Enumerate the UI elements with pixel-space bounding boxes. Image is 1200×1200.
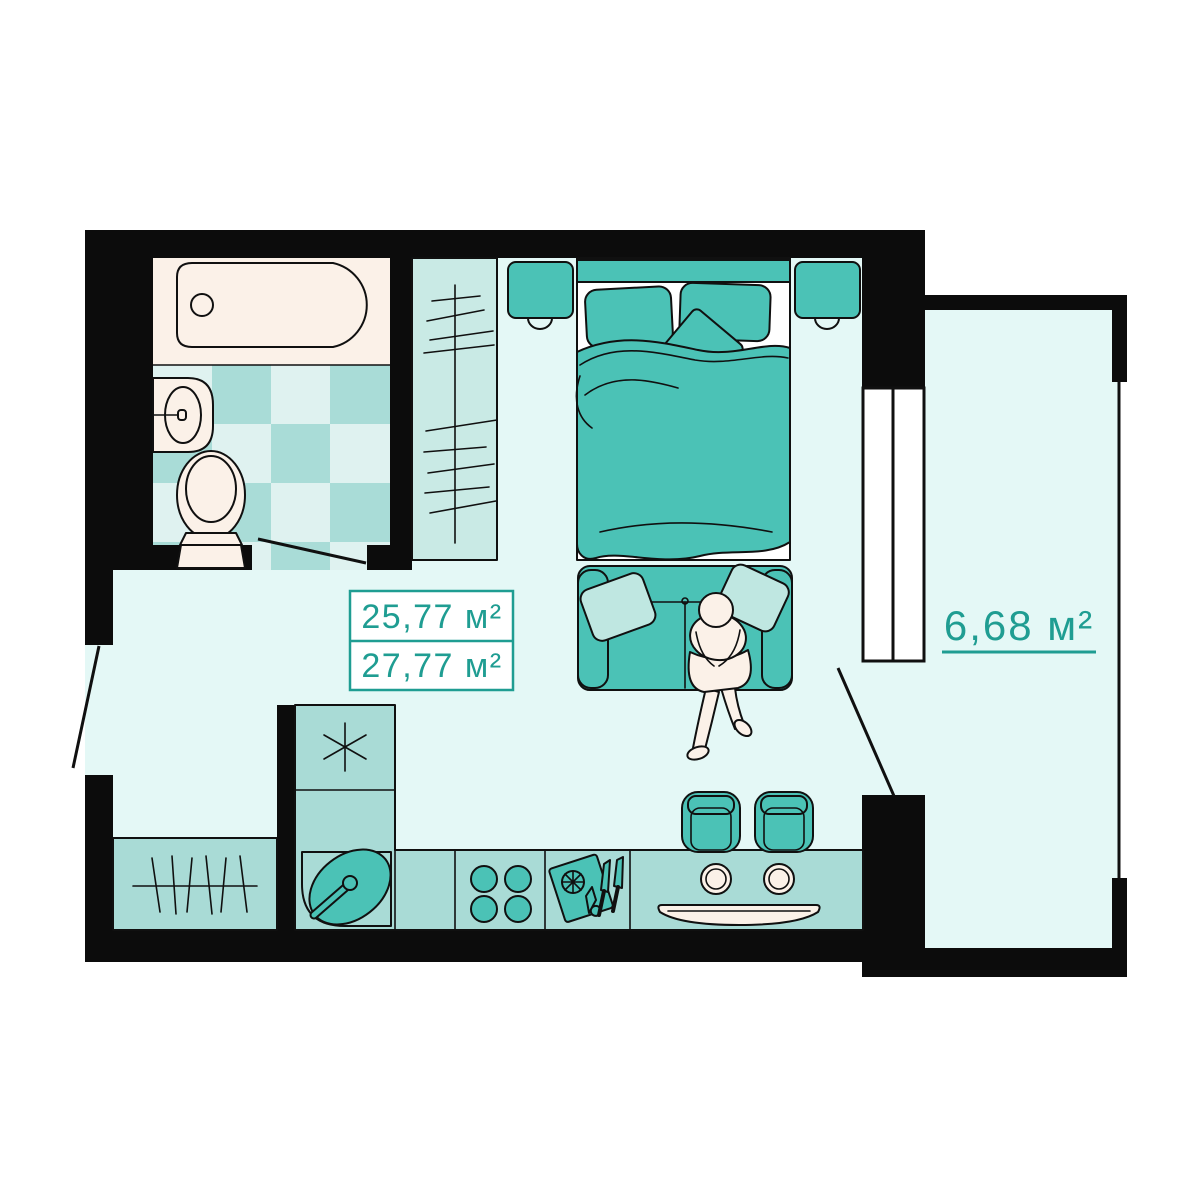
balcony-door-opening: [862, 661, 925, 795]
person-head: [699, 593, 733, 627]
balcony-window: [863, 388, 924, 661]
floor-plan: 25,77 м² 27,77 м² 6,68 м²: [0, 0, 1200, 1200]
bed: [576, 258, 790, 560]
area-label-box: 25,77 м² 27,77 м²: [350, 591, 513, 690]
bathtub: [177, 263, 367, 347]
balcony-area-label: 6,68 м²: [944, 602, 1094, 649]
total-area-label: 27,77 м²: [361, 647, 502, 685]
balcony-label: 6,68 м²: [942, 602, 1096, 652]
bathroom-sink: [153, 378, 213, 452]
faucet: [178, 410, 186, 420]
bathtub-drain: [191, 294, 213, 316]
entry-closet: [113, 838, 277, 930]
pillow-left: [584, 286, 673, 348]
toilet: [177, 451, 245, 568]
wardrobe: [412, 258, 497, 560]
entrance-opening: [85, 645, 113, 775]
chair-left: [682, 792, 740, 852]
chair-right: [755, 792, 813, 852]
floor-plan-drawing: 25,77 м² 27,77 м² 6,68 м²: [0, 0, 1200, 1200]
lemon-slice: [562, 871, 584, 893]
blanket: [577, 340, 790, 559]
sofa: [578, 561, 792, 690]
nightstand-right: [795, 262, 860, 329]
headboard: [577, 260, 790, 282]
living-area-label: 25,77 м²: [361, 598, 502, 636]
nightstand-left: [508, 262, 573, 329]
